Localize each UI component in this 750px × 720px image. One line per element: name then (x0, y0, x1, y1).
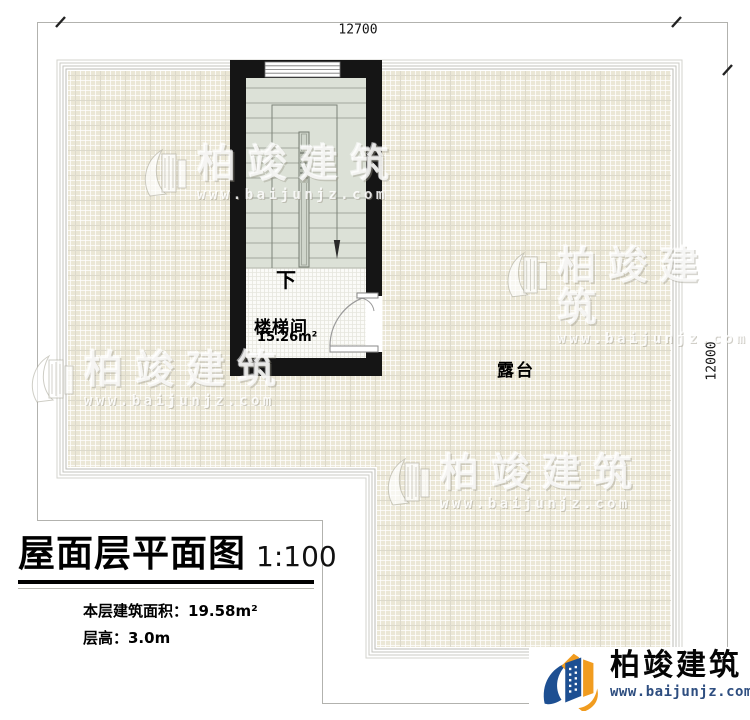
stair-window (265, 62, 340, 77)
plan-scale: 1:100 (256, 540, 337, 573)
title-underline-thin (18, 588, 314, 589)
title-block: 屋面层平面图 1:100 本层建筑面积：19.58m² 层高：3.0m (18, 533, 330, 648)
stair-down-label: 下 (276, 264, 296, 293)
stair-railing (299, 132, 309, 267)
company-logo: 柏竣建筑 www.baijunjz.com (529, 647, 750, 713)
building-area-text: 本层建筑面积：19.58m² (83, 600, 330, 621)
floor-plan-sheet: 12700 12000 下 楼梯间 15.26m² 露台 柏竣建筑 www.ba… (0, 0, 750, 720)
dimension-line-top (37, 17, 727, 27)
stairwell-area-label: 15.26m² (257, 330, 317, 345)
terrace-label: 露台 (497, 356, 535, 381)
title-underline (18, 580, 314, 584)
plan-title: 屋面层平面图 (18, 533, 246, 575)
stair-door-leaf (330, 346, 378, 352)
floor-height-text: 层高：3.0m (83, 627, 330, 648)
company-website: www.baijunjz.com (610, 684, 750, 700)
dimension-top-label: 12700 (338, 23, 377, 38)
dimension-line-right (723, 22, 732, 659)
company-logo-icon (533, 649, 605, 711)
company-name: 柏竣建筑 (610, 649, 750, 683)
dimension-right-label: 12000 (705, 341, 720, 380)
